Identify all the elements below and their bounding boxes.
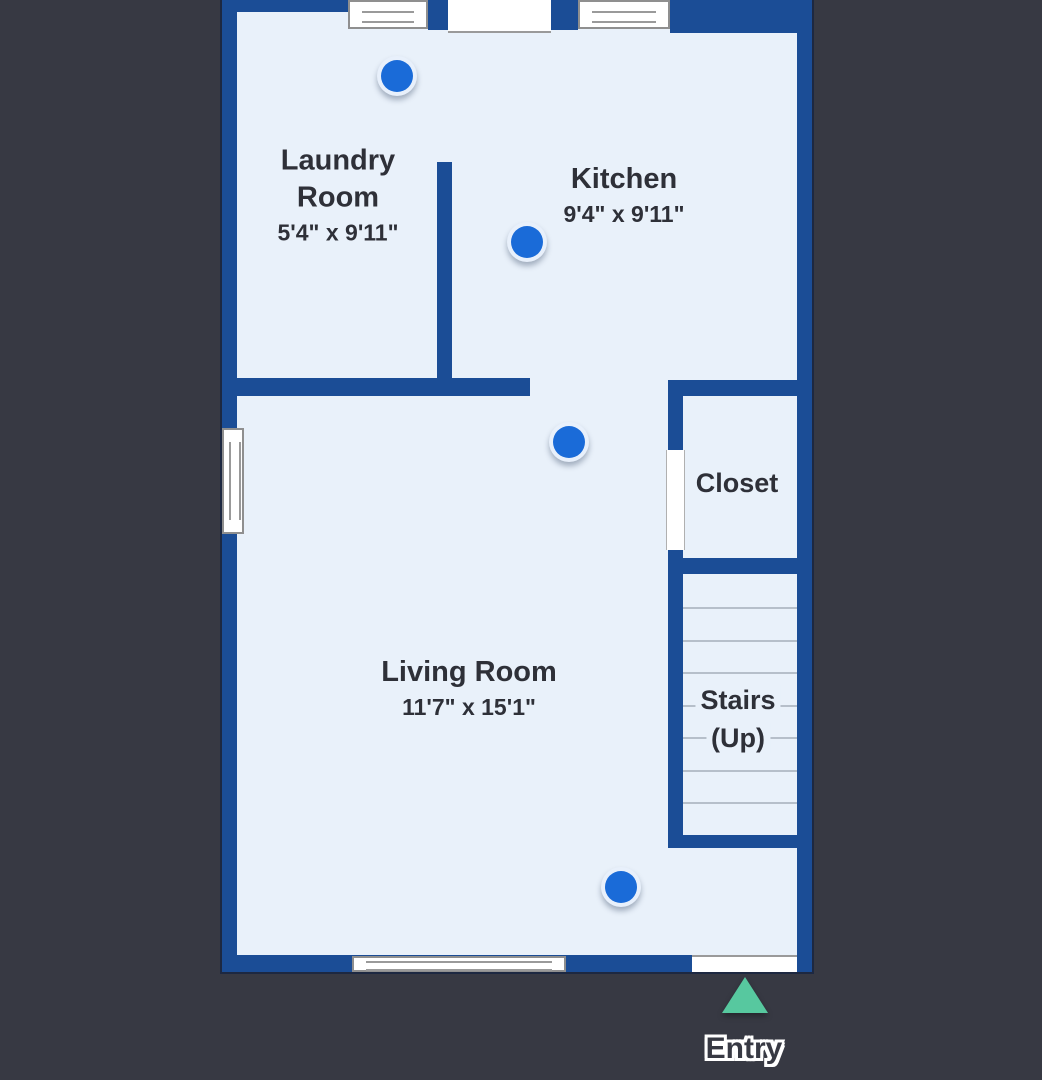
wall bbox=[670, 0, 812, 33]
room-label-closet: Closet bbox=[696, 464, 779, 502]
wall-stairs-west bbox=[668, 558, 683, 848]
room-label-stairs: Stairs (Up) bbox=[695, 681, 780, 757]
wall bbox=[222, 0, 348, 12]
room-name: Kitchen bbox=[563, 161, 684, 198]
stair-tread-line bbox=[683, 640, 797, 642]
stair-tread-line bbox=[683, 607, 797, 609]
wall-closet-north bbox=[668, 380, 812, 396]
room-name: Stairs bbox=[695, 681, 780, 719]
window-symbol-top-right bbox=[578, 0, 670, 29]
window-symbol-top-left bbox=[348, 0, 428, 29]
pano-point-dot[interactable] bbox=[507, 222, 547, 262]
wall-laundry-kitchen-divider bbox=[437, 162, 452, 396]
wall bbox=[428, 0, 448, 30]
room-label-living-room: Living Room 11'7" x 15'1" bbox=[381, 654, 557, 724]
wall-stairs-south bbox=[668, 835, 798, 848]
stair-tread-line bbox=[683, 672, 797, 674]
room-dimensions: 11'7" x 15'1" bbox=[381, 691, 557, 724]
room-name: (Up) bbox=[695, 719, 780, 757]
wall bbox=[551, 0, 578, 30]
room-dimensions: 9'4" x 9'11" bbox=[563, 198, 684, 231]
wall-stairs-north bbox=[668, 558, 812, 574]
stair-tread-line bbox=[683, 802, 797, 804]
wall-laundry-south bbox=[222, 378, 530, 396]
pano-point-dot[interactable] bbox=[549, 422, 589, 462]
room-name: Laundry bbox=[277, 143, 398, 180]
window-symbol-left bbox=[222, 428, 244, 534]
stair-tread-line bbox=[683, 770, 797, 772]
room-dimensions: 5'4" x 9'11" bbox=[277, 217, 398, 250]
entry-arrow-icon bbox=[722, 977, 768, 1013]
entry-door-opening bbox=[692, 955, 797, 972]
room-name: Closet bbox=[696, 464, 779, 502]
doorway-top-opening bbox=[448, 0, 551, 33]
window-symbol-bottom bbox=[352, 956, 566, 972]
pano-point-dot[interactable] bbox=[601, 867, 641, 907]
room-label-laundry: Laundry Room 5'4" x 9'11" bbox=[277, 143, 398, 250]
room-name: Living Room bbox=[381, 654, 557, 691]
entry-label: Entry bbox=[706, 1032, 783, 1066]
closet-door-opening bbox=[666, 450, 685, 550]
room-name: Room bbox=[277, 180, 398, 217]
room-label-kitchen: Kitchen 9'4" x 9'11" bbox=[563, 161, 684, 231]
pano-point-dot[interactable] bbox=[377, 56, 417, 96]
floorplan-canvas: Laundry Room 5'4" x 9'11" Kitchen 9'4" x… bbox=[0, 0, 1042, 1080]
